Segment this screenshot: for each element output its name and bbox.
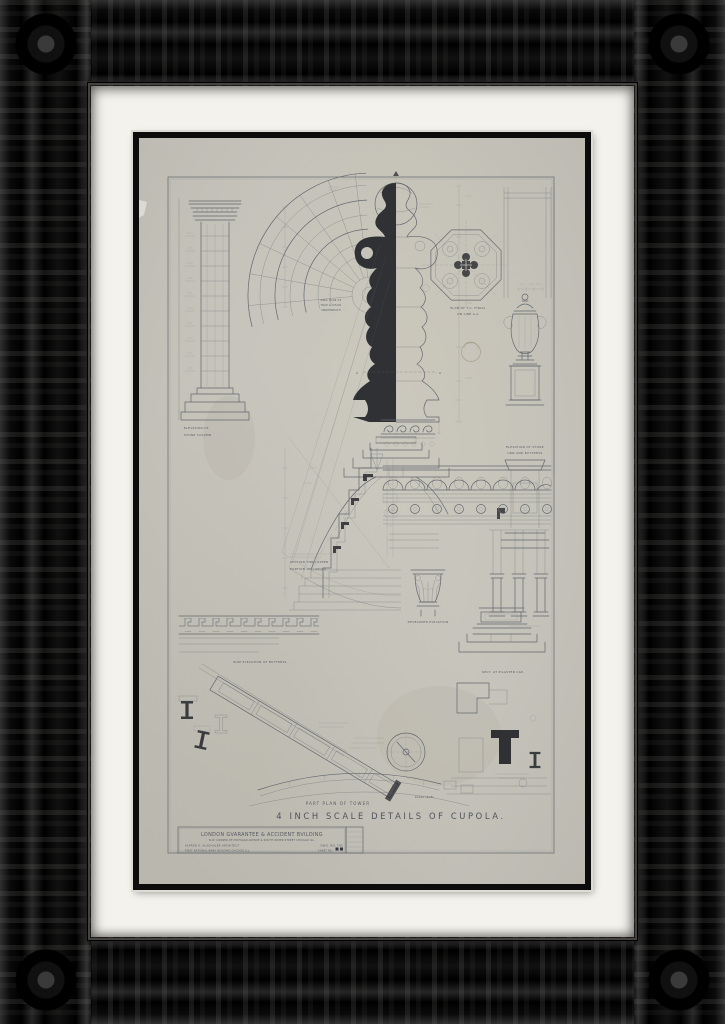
title-block-architect: ALFRED S. ALSCHULER ARCHITECT bbox=[185, 844, 240, 848]
frame-corner-ornament bbox=[0, 0, 92, 88]
cupola-drawing: ELEVATION OF STONE COLUMN bbox=[139, 138, 585, 884]
finial-plan-octagon: PLAN OF T.C. FINIAL ON LINE A-A bbox=[422, 221, 543, 316]
frame-corner-ornament bbox=[0, 936, 92, 1024]
finial-plan-label-line1: PLAN OF T.C. FINIAL bbox=[450, 306, 485, 310]
title-block-sheet-no: SHEET NO. bbox=[318, 850, 333, 853]
section-label-line1: SECTION THRU UPPER bbox=[290, 560, 328, 564]
revision-box bbox=[346, 827, 363, 853]
drawing-sheet: ELEVATION OF STONE COLUMN bbox=[139, 138, 585, 884]
title-block: LONDON GVARANTEE & ACCIDENT BVILDING N.W… bbox=[178, 827, 363, 853]
plaza-level-label: PLAZA LEVEL bbox=[415, 795, 435, 799]
frame-carving-bottom bbox=[0, 937, 725, 1024]
developed-elevation: DEVELOPED ELEVATION bbox=[383, 466, 552, 626]
developed-elevation-label: DEVELOPED ELEVATION bbox=[408, 620, 449, 624]
ring-plan-label-line3: UNDERNEATH bbox=[321, 308, 341, 312]
frame-corner-ornament bbox=[633, 936, 725, 1024]
inner-frame-fillet: ELEVATION OF STONE COLUMN bbox=[133, 132, 591, 890]
part-plan-label: PART PLAN OF TOWER bbox=[306, 801, 370, 806]
mat-board: ELEVATION OF STONE COLUMN bbox=[91, 86, 634, 937]
sheet-main-title: 4 INCH SCALE DETAILS OF CUPOLA. bbox=[276, 811, 506, 821]
section-mark-a-left: A bbox=[356, 371, 358, 375]
urn-label-line1: ELEVATION OF STONE bbox=[506, 445, 544, 449]
framed-artwork-photo: ELEVATION OF STONE COLUMN bbox=[0, 0, 725, 1024]
frame-carving-right bbox=[634, 0, 725, 1024]
frame-carving-top bbox=[0, 0, 725, 86]
title-block-building: LONDON GVARANTEE & ACCIDENT BVILDING bbox=[201, 832, 323, 838]
frame-carving-left bbox=[0, 0, 91, 1024]
section-mark-a-right: A bbox=[439, 371, 441, 375]
title-block-drawing-no: DWG. NO. 745 bbox=[320, 844, 343, 848]
urn-label-line2: URN AND BUTTRESS bbox=[507, 451, 542, 455]
column-label-line2: STONE COLUMN bbox=[184, 433, 212, 437]
column-label-line1: ELEVATION OF bbox=[184, 426, 209, 430]
pilaster-cap-label: SECT. AT PILASTER CAP. bbox=[482, 670, 524, 674]
buttress-side-label: SIDE ELEVATION OF BUTTRESS bbox=[233, 660, 286, 664]
finial-plan-label-line2: ON LINE A-A bbox=[457, 312, 478, 316]
ring-plan-label-line2: TRAP & CHAIR bbox=[321, 303, 342, 307]
title-block-office: FIRST NATIONAL BANK BUILDING CHICAGO ILL… bbox=[185, 850, 250, 853]
title-block-address: N.W. CORNER OF MICHIGAN AVENUE & SOUTH W… bbox=[209, 839, 315, 842]
section-label-line2: PORTION OF CUPOLA bbox=[290, 567, 326, 571]
frame-corner-ornament bbox=[633, 0, 725, 88]
sheet-titles: 4 INCH SCALE DETAILS OF CUPOLA. LONDON G… bbox=[178, 811, 506, 853]
ring-plan-label-line1: RING PLAN OF bbox=[321, 298, 342, 302]
finial-section-elevation: A A bbox=[289, 171, 473, 610]
